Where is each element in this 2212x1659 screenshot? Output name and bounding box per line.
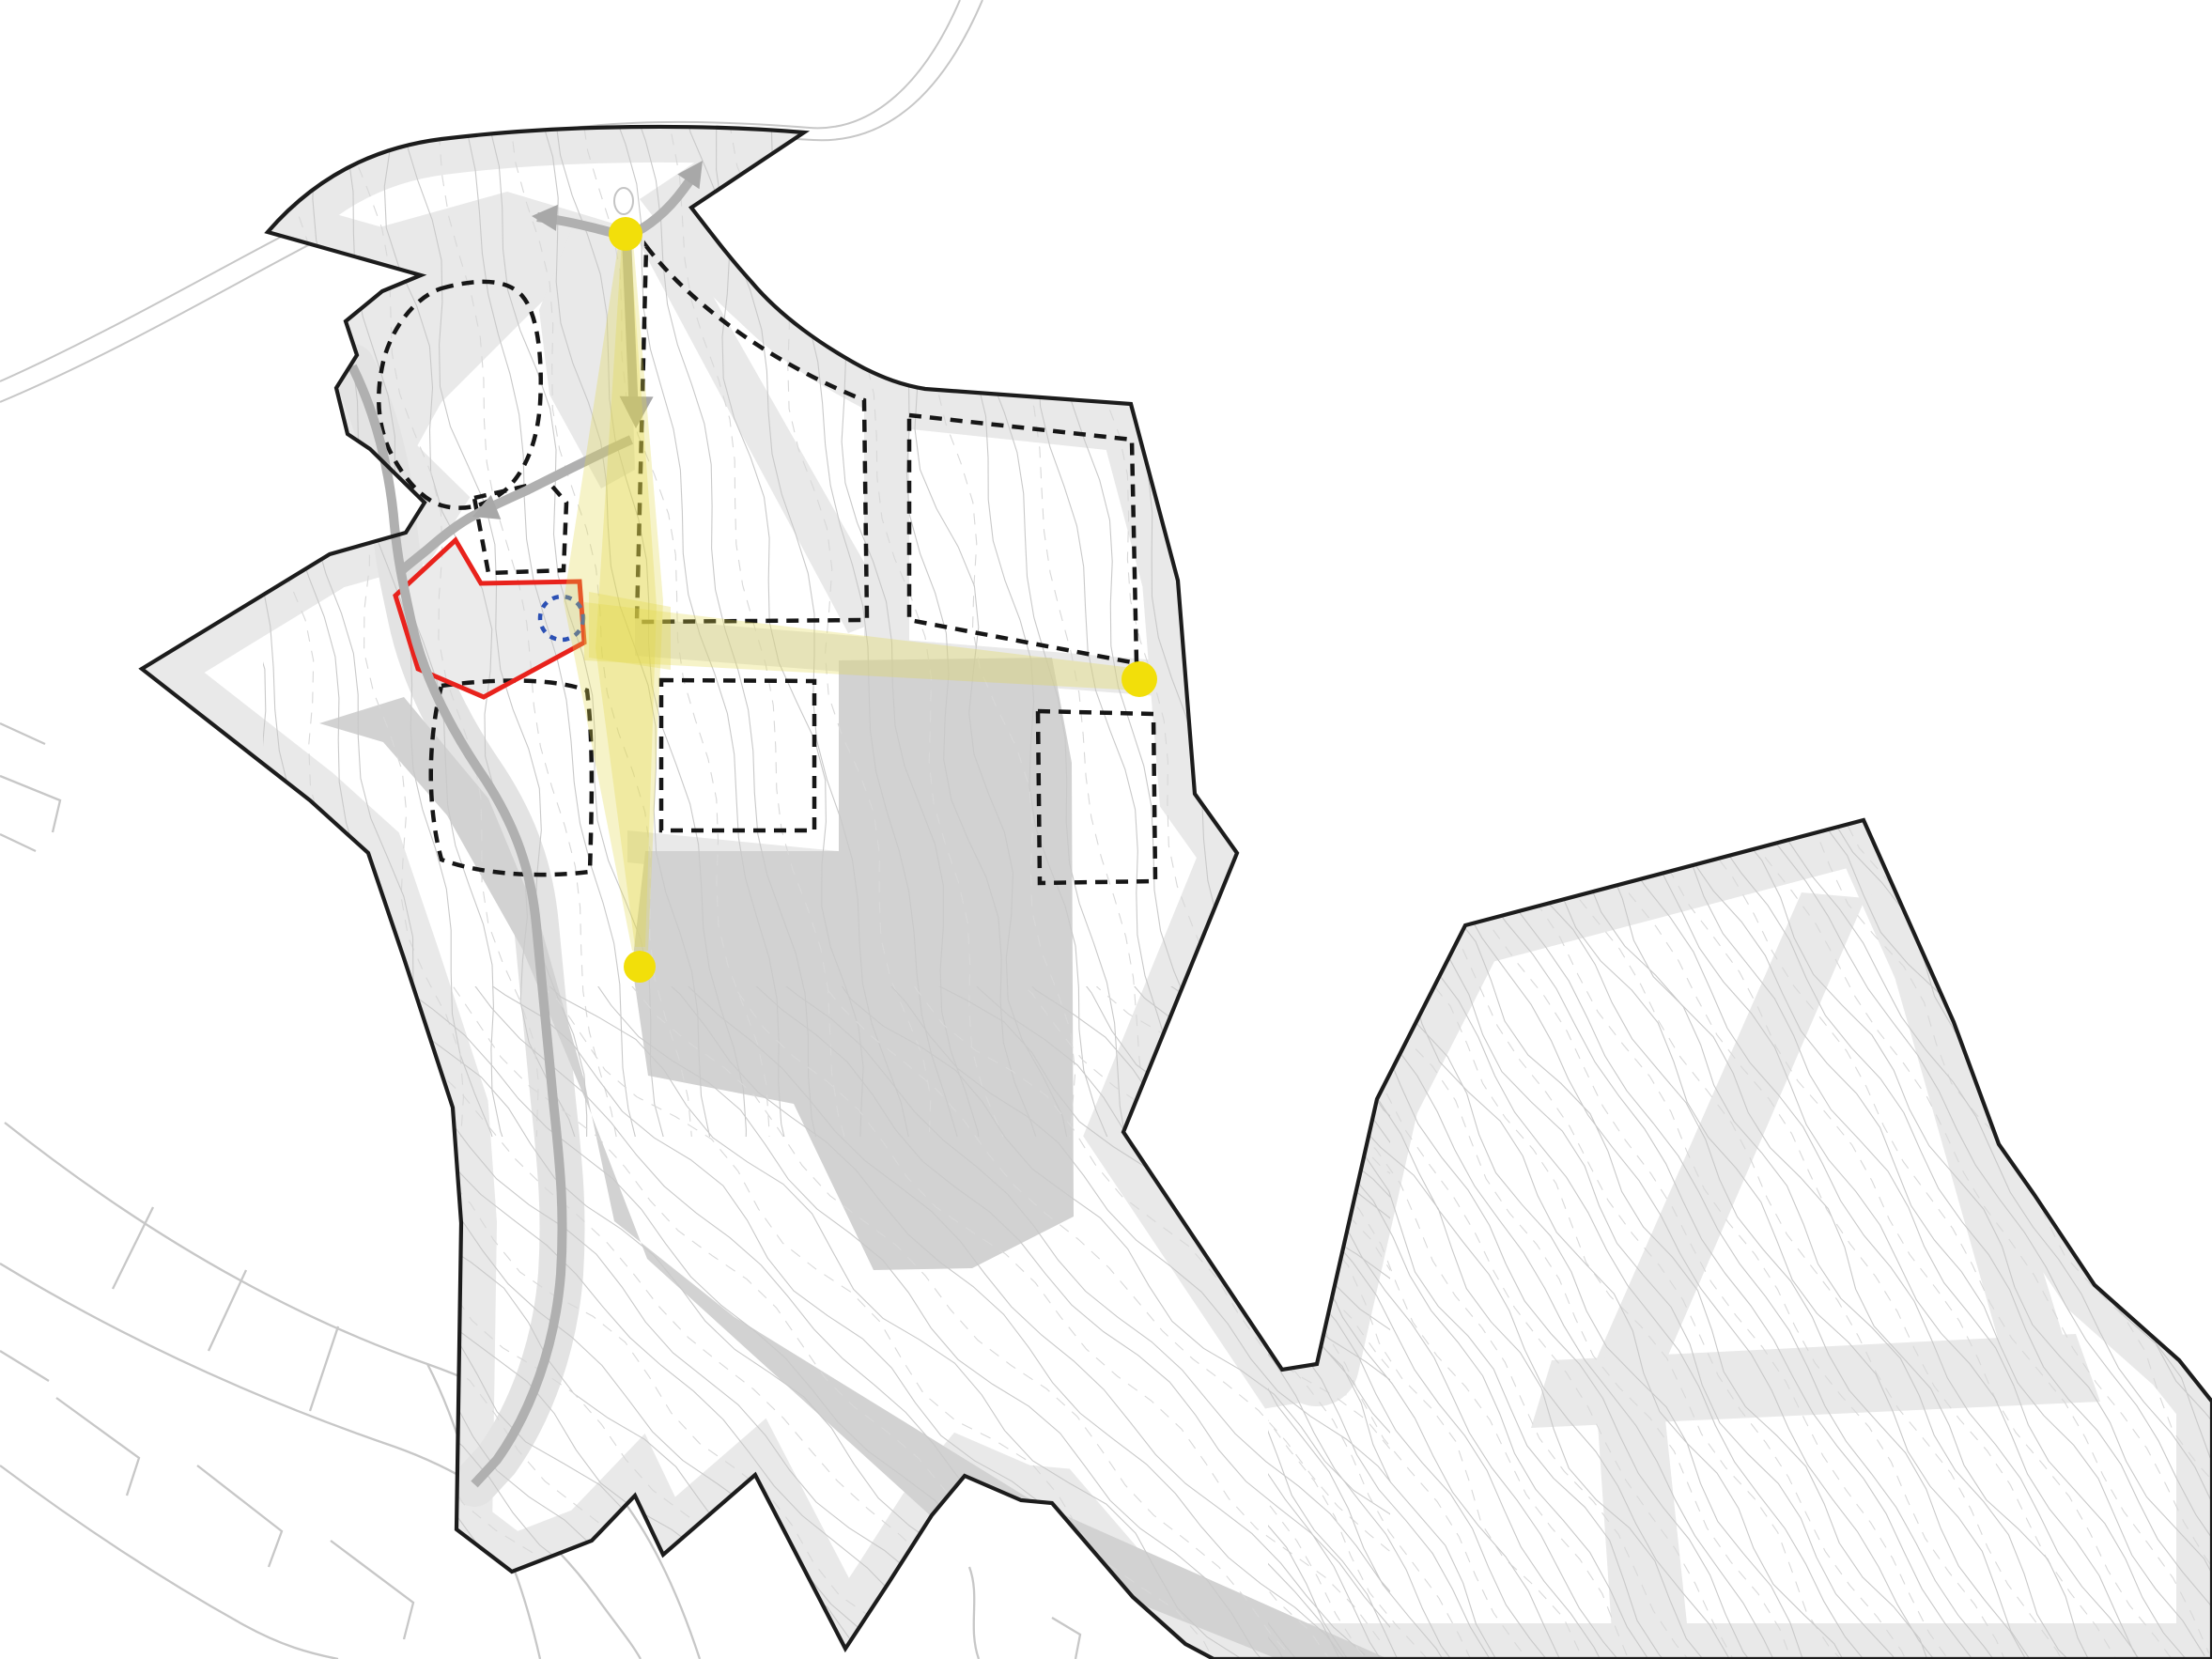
node-marker (1121, 661, 1157, 697)
node-marker (624, 951, 656, 983)
site-plan-map (0, 0, 2212, 1659)
node-marker (609, 217, 642, 251)
site-plan-page (0, 0, 2212, 1659)
roundabout-icon (614, 188, 633, 214)
